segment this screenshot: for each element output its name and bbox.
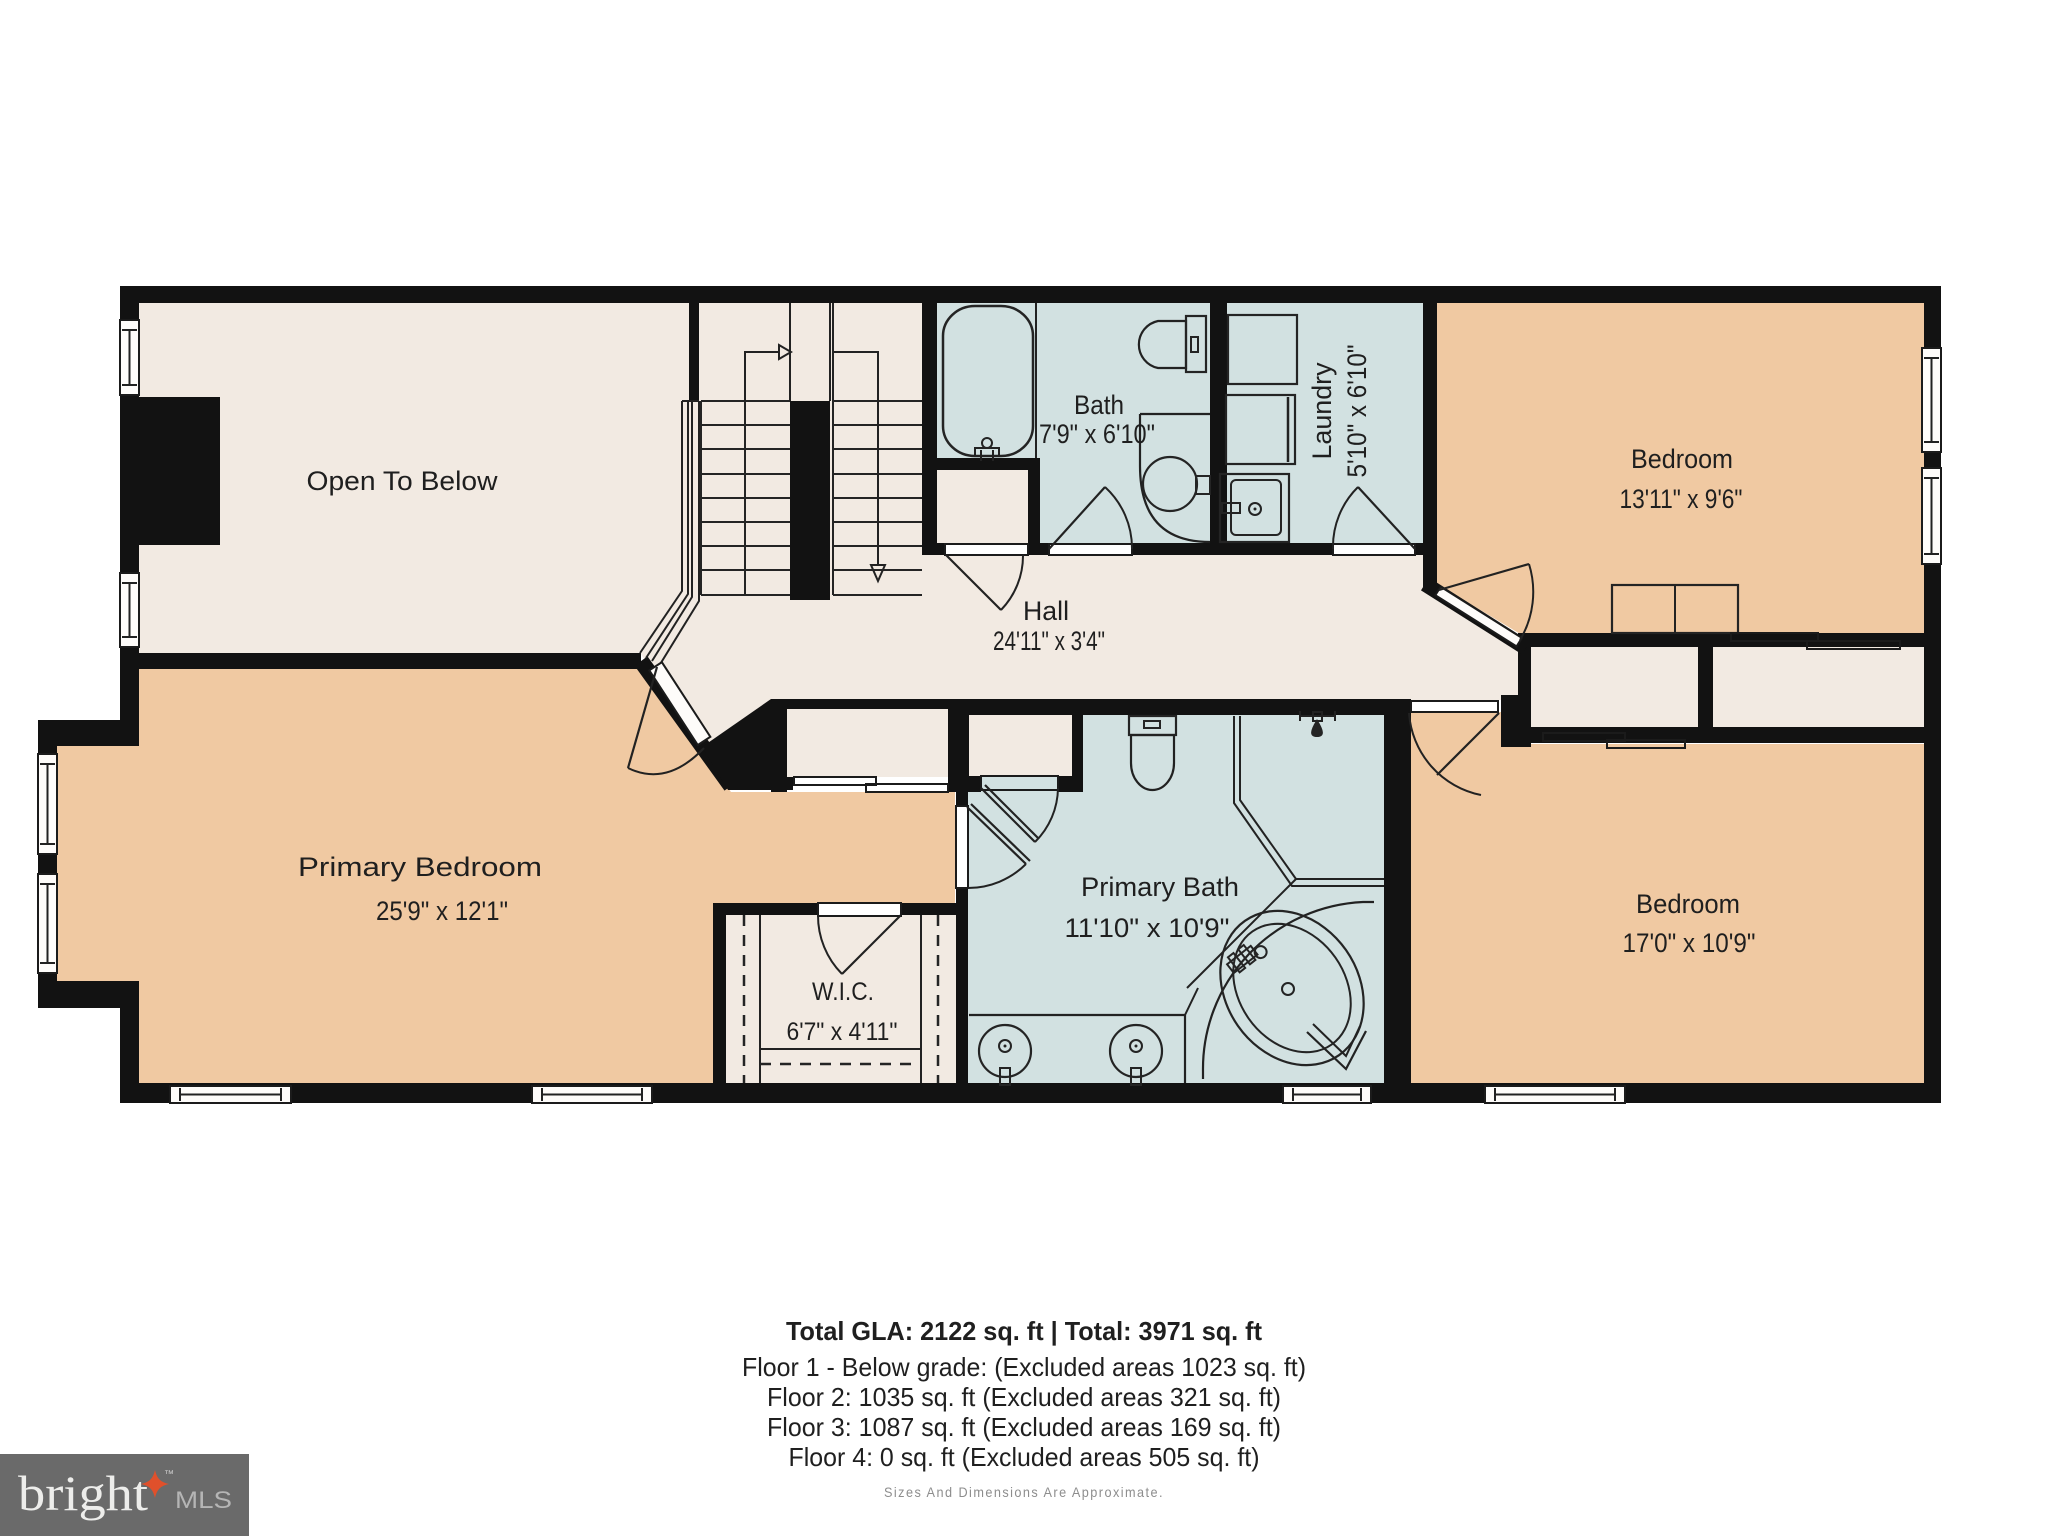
svg-text:25'9" x 12'1": 25'9" x 12'1"	[376, 896, 508, 926]
svg-text:24'11" x 3'4": 24'11" x 3'4"	[993, 626, 1105, 656]
svg-text:Floor 1 - Below grade: (Exclud: Floor 1 - Below grade: (Excluded areas 1…	[742, 1352, 1306, 1382]
svg-text:13'11" x 9'6": 13'11" x 9'6"	[1620, 484, 1743, 514]
svg-text:MLS: MLS	[175, 1487, 232, 1514]
svg-text:Primary Bedroom: Primary Bedroom	[298, 852, 542, 882]
svg-text:6'7" x 4'11": 6'7" x 4'11"	[787, 1018, 898, 1046]
svg-text:Bedroom: Bedroom	[1636, 889, 1740, 919]
svg-text:7'9" x 6'10": 7'9" x 6'10"	[1039, 419, 1155, 449]
svg-text:Floor 3: 1087 sq. ft (Excluded: Floor 3: 1087 sq. ft (Excluded areas 169…	[767, 1412, 1281, 1442]
svg-text:Primary Bath: Primary Bath	[1081, 872, 1239, 902]
svg-text:bright: bright	[18, 1465, 148, 1521]
svg-text:Bedroom: Bedroom	[1631, 444, 1733, 474]
svg-text:Open To Below: Open To Below	[307, 466, 499, 496]
svg-text:5'10" x 6'10": 5'10" x 6'10"	[1342, 345, 1372, 478]
svg-text:Sizes And Dimensions Are Appro: Sizes And Dimensions Are Approximate.	[884, 1484, 1164, 1500]
svg-text:17'0" x 10'9": 17'0" x 10'9"	[1623, 928, 1756, 958]
svg-text:Bath: Bath	[1074, 390, 1124, 420]
svg-text:Floor 2: 1035 sq. ft (Excluded: Floor 2: 1035 sq. ft (Excluded areas 321…	[767, 1382, 1281, 1412]
svg-text:Hall: Hall	[1023, 596, 1069, 626]
svg-text:Laundry: Laundry	[1307, 362, 1337, 459]
svg-text:Total GLA: 2122 sq. ft | Total: Total GLA: 2122 sq. ft | Total: 3971 sq.…	[786, 1316, 1262, 1346]
svg-text:11'10" x 10'9": 11'10" x 10'9"	[1065, 913, 1230, 943]
svg-text:™: ™	[164, 1469, 174, 1480]
svg-text:W.I.C.: W.I.C.	[812, 978, 874, 1006]
svg-text:Floor 4: 0 sq. ft (Excluded ar: Floor 4: 0 sq. ft (Excluded areas 505 sq…	[789, 1442, 1260, 1472]
